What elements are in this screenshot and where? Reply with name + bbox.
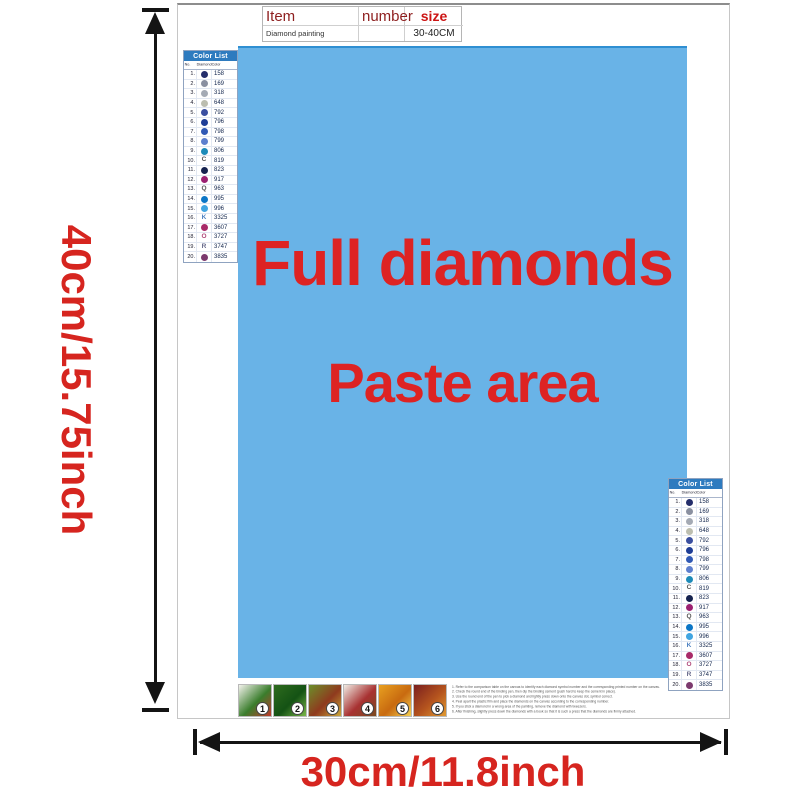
diamond-symbol-icon [196,99,211,108]
color-list-right: Color ListNo.DiamondColor1.1582.1693.318… [668,478,723,691]
diamond-symbol-icon [196,224,211,233]
color-row-number: 8. [669,566,681,572]
item-table-product-name: Diamond painting [263,26,359,41]
dmc-color-code: 3835 [211,252,237,262]
color-row: 20.3835 [184,252,237,262]
diamond-dot-icon [201,109,208,116]
diamond-dot-icon [201,90,208,97]
dmc-color-code: 3607 [211,224,237,233]
color-row-number: 7. [669,557,681,563]
dmc-color-code: 798 [211,128,237,137]
color-row: 17.3607 [669,652,722,662]
color-row: 14.995 [184,195,237,205]
color-row-number: 7. [184,129,196,135]
horizontal-arrow-left-cap-icon [193,729,197,755]
color-row-number: 6. [184,119,196,125]
diamond-symbol-icon: O [196,233,211,242]
color-row: 11.823 [184,166,237,176]
color-row-number: 5. [669,538,681,544]
color-row-number: 4. [184,100,196,106]
dmc-color-code: 799 [696,565,722,574]
diamond-letter-symbol: C [202,157,207,164]
color-row: 9.806 [669,575,722,585]
color-row: 1.158 [184,70,237,80]
diamond-symbol-icon [681,632,696,641]
dmc-color-code: 917 [696,604,722,613]
dmc-color-code: 996 [211,204,237,213]
diamond-symbol-icon [196,89,211,98]
dmc-color-code: 995 [211,195,237,204]
color-row: 4.648 [184,99,237,109]
color-row: 10.C819 [669,584,722,594]
item-table-header-number: number [359,7,405,26]
color-row-number: 19. [184,244,196,250]
dmc-color-code: 796 [211,118,237,127]
diamond-dot-icon [686,652,693,659]
diamond-dot-icon [686,604,693,611]
color-row-number: 11. [669,595,681,601]
color-row: 5.792 [669,536,722,546]
dmc-color-code: 823 [211,166,237,175]
diamond-symbol-icon [681,652,696,661]
dmc-color-code: 963 [211,185,237,194]
diamond-symbol-icon [196,70,211,79]
dmc-color-code: 648 [696,527,722,536]
color-row: 10.C819 [184,156,237,166]
color-row-number: 20. [184,254,196,260]
color-row: 3.318 [184,89,237,99]
dmc-color-code: 648 [211,99,237,108]
color-row-number: 10. [669,586,681,592]
diamond-symbol-icon [681,556,696,565]
color-row: 2.169 [669,508,722,518]
color-row: 5.792 [184,108,237,118]
item-table: Item number size Diamond painting 30-40C… [262,6,462,42]
diamond-letter-symbol: O [201,234,206,241]
color-list-column-header: Color [211,63,227,67]
color-row-number: 8. [184,138,196,144]
diamond-symbol-icon [196,166,211,175]
color-row: 17.3607 [184,224,237,234]
color-row-number: 11. [184,167,196,173]
color-row-number: 1. [184,71,196,77]
diamond-symbol-icon: R [196,243,211,252]
color-list-column-headers: No.DiamondColor [184,61,237,70]
color-row-number: 3. [184,90,196,96]
diamond-symbol-icon: Q [196,185,211,194]
dmc-color-code: 995 [696,623,722,632]
diamond-dot-icon [201,119,208,126]
dmc-color-code: 796 [696,546,722,555]
item-table-header-item: Item [263,7,359,26]
color-row-number: 15. [184,206,196,212]
color-row-number: 19. [669,672,681,678]
diamond-symbol-icon: O [681,661,696,670]
color-row: 16.K3325 [184,214,237,224]
horizontal-dimension-arrow [200,741,721,744]
step-number-badge: 2 [291,702,304,715]
color-list-left: Color ListNo.DiamondColor1.1582.1693.318… [183,50,238,263]
color-row-number: 3. [669,518,681,524]
paste-area-label: Paste area [238,350,687,415]
diamond-symbol-icon [196,118,211,127]
step-thumbnail: 6 [413,684,447,717]
height-label: 40cm/15.75inch [52,225,100,536]
vertical-dimension-arrow [154,30,157,686]
instructions-block: 1. Refer to the comparison table on the … [452,685,702,717]
color-row: 15.996 [669,632,722,642]
color-row: 9.806 [184,147,237,157]
diamond-dot-icon [686,633,693,640]
diamond-symbol-icon [681,565,696,574]
color-row: 12.917 [184,176,237,186]
dmc-color-code: 806 [696,575,722,584]
diamond-symbol-icon [681,536,696,545]
diamond-symbol-icon [196,80,211,89]
instruction-line: 6. After finishing, slightly press down … [452,710,702,715]
dmc-color-code: 819 [211,156,237,165]
color-row-number: 15. [669,634,681,640]
diamond-dot-icon [686,518,693,525]
diamond-letter-symbol: R [687,672,692,679]
dmc-color-code: 819 [696,584,722,593]
dmc-color-code: 3747 [696,671,722,680]
dmc-color-code: 318 [696,517,722,526]
diamond-dot-icon [686,547,693,554]
color-row: 12.917 [669,604,722,614]
color-row: 6.796 [184,118,237,128]
color-row-number: 13. [184,186,196,192]
step-number-badge: 4 [361,702,374,715]
dmc-color-code: 158 [211,70,237,79]
color-row-number: 2. [184,81,196,87]
diamond-letter-symbol: Q [201,186,206,193]
color-list-column-header: No. [669,491,676,495]
diamond-dot-icon [201,100,208,107]
color-row: 13.Q963 [669,613,722,623]
arrow-right-icon [700,732,722,752]
diamond-symbol-icon [681,604,696,613]
diamond-dot-icon [201,148,208,155]
color-row-number: 12. [669,605,681,611]
color-list-column-header: No. [184,63,191,67]
diamond-symbol-icon [196,204,211,213]
diamond-dot-icon [686,508,693,515]
diamond-symbol-icon [681,498,696,507]
dmc-color-code: 318 [211,89,237,98]
color-row-number: 5. [184,110,196,116]
color-row: 1.158 [669,498,722,508]
color-row-number: 4. [669,528,681,534]
color-row: 6.796 [669,546,722,556]
diamond-letter-symbol: C [687,585,692,592]
step-thumbnails: 123456 [238,684,447,717]
diamond-dot-icon [686,624,693,631]
diamond-symbol-icon [196,108,211,117]
dmc-color-code: 996 [696,632,722,641]
step-number-badge: 1 [256,702,269,715]
diamond-dot-icon [201,196,208,203]
step-thumbnail: 4 [343,684,377,717]
dmc-color-code: 3325 [211,214,237,223]
color-row-number: 13. [669,614,681,620]
dmc-color-code: 806 [211,147,237,156]
dmc-color-code: 3727 [696,661,722,670]
color-list-title: Color List [184,51,237,61]
diamond-symbol-icon [681,623,696,632]
color-row-number: 18. [669,662,681,668]
dmc-color-code: 158 [696,498,722,507]
diamond-dot-icon [201,205,208,212]
color-row: 16.K3325 [669,642,722,652]
color-row: 8.799 [184,137,237,147]
color-row: 7.798 [184,128,237,138]
color-list-column-header: Color [696,491,712,495]
diamond-dot-icon [686,556,693,563]
diamond-symbol-icon [196,195,211,204]
diamond-dot-icon [201,80,208,87]
color-row: 2.169 [184,80,237,90]
dmc-color-code: 3727 [211,233,237,242]
diamond-symbol-icon [681,517,696,526]
color-list-column-header: Diamond [196,63,205,67]
step-thumbnail: 3 [308,684,342,717]
color-row: 19.R3747 [669,671,722,681]
color-row: 7.798 [669,556,722,566]
color-row-number: 6. [669,547,681,553]
dmc-color-code: 798 [696,556,722,565]
diamond-symbol-icon [681,546,696,555]
diamond-letter-symbol: O [686,662,691,669]
diamond-letter-symbol: K [202,215,207,222]
step-thumbnail: 1 [238,684,272,717]
vertical-arrow-bottom-cap-icon [142,708,169,712]
diamond-dot-icon [686,499,693,506]
color-row: 15.996 [184,204,237,214]
dmc-color-code: 169 [211,80,237,89]
color-row: 3.318 [669,517,722,527]
dmc-color-code: 792 [696,536,722,545]
dmc-color-code: 169 [696,508,722,517]
diamond-dot-icon [686,537,693,544]
color-row-number: 10. [184,158,196,164]
step-number-badge: 3 [326,702,339,715]
color-row-number: 16. [669,643,681,649]
color-row-number: 14. [669,624,681,630]
diamond-letter-symbol: K [687,643,692,650]
diamond-symbol-icon: R [681,671,696,680]
diamond-symbol-icon: K [196,214,211,223]
diamond-dot-icon [686,576,693,583]
dmc-color-code: 917 [211,176,237,185]
color-row: 8.799 [669,565,722,575]
color-row-number: 18. [184,234,196,240]
step-thumbnail: 2 [273,684,307,717]
step-number-badge: 6 [431,702,444,715]
width-label: 30cm/11.8inch [301,748,586,796]
diamond-symbol-icon: C [681,584,696,593]
dmc-color-code: 3325 [696,642,722,651]
color-row: 11.823 [669,594,722,604]
color-row: 18.O3727 [669,661,722,671]
horizontal-arrow-right-cap-icon [724,729,728,755]
diamond-symbol-icon [196,176,211,185]
diamond-letter-symbol: R [202,244,207,251]
color-row: 14.995 [669,623,722,633]
item-table-product-size: 30-40CM [405,26,463,41]
diamond-dot-icon [201,167,208,174]
diamond-dot-icon [201,224,208,231]
diamond-symbol-icon: C [196,156,211,165]
color-row-number: 9. [669,576,681,582]
diamond-dot-icon [201,138,208,145]
color-row-number: 9. [184,148,196,154]
diamond-symbol-icon [196,252,211,262]
item-table-product-number [359,26,405,41]
diamond-dot-icon [201,71,208,78]
diamond-dot-icon [201,128,208,135]
diamond-dot-icon [686,528,693,535]
color-row-number: 14. [184,196,196,202]
diamond-symbol-icon [196,147,211,156]
dmc-color-code: 963 [696,613,722,622]
color-row-number: 12. [184,177,196,183]
dmc-color-code: 799 [211,137,237,146]
color-row-number: 17. [669,653,681,659]
step-number-badge: 5 [396,702,409,715]
color-row-number: 16. [184,215,196,221]
color-list-column-headers: No.DiamondColor [669,489,722,498]
color-row: 13.Q963 [184,185,237,195]
diamond-symbol-icon [196,137,211,146]
diamond-symbol-icon: Q [681,613,696,622]
color-list-title: Color List [669,479,722,489]
color-row-number: 17. [184,225,196,231]
diamond-symbol-icon: K [681,642,696,651]
color-row: 19.R3747 [184,243,237,253]
diamond-dot-icon [686,566,693,573]
diamond-symbol-icon [681,594,696,603]
diamond-dot-icon [686,595,693,602]
dmc-color-code: 3607 [696,652,722,661]
diamond-letter-symbol: Q [686,614,691,621]
item-table-header-size: size [405,7,463,26]
color-list-column-header: Diamond [681,491,690,495]
diamond-symbol-icon [681,575,696,584]
arrow-down-icon [145,682,165,704]
color-row-number: 1. [669,499,681,505]
full-diamonds-label: Full diamonds [238,226,687,300]
diamond-symbol-icon [681,527,696,536]
dmc-color-code: 823 [696,594,722,603]
color-row: 4.648 [669,527,722,537]
step-thumbnail: 5 [378,684,412,717]
diamond-dot-icon [201,176,208,183]
diamond-symbol-icon [681,508,696,517]
dmc-color-code: 792 [211,108,237,117]
dmc-color-code: 3747 [211,243,237,252]
color-row: 18.O3727 [184,233,237,243]
instructions-text: 1. Refer to the comparison table on the … [452,685,702,715]
color-row-number: 2. [669,509,681,515]
diamond-dot-icon [201,254,208,261]
diamond-symbol-icon [196,128,211,137]
